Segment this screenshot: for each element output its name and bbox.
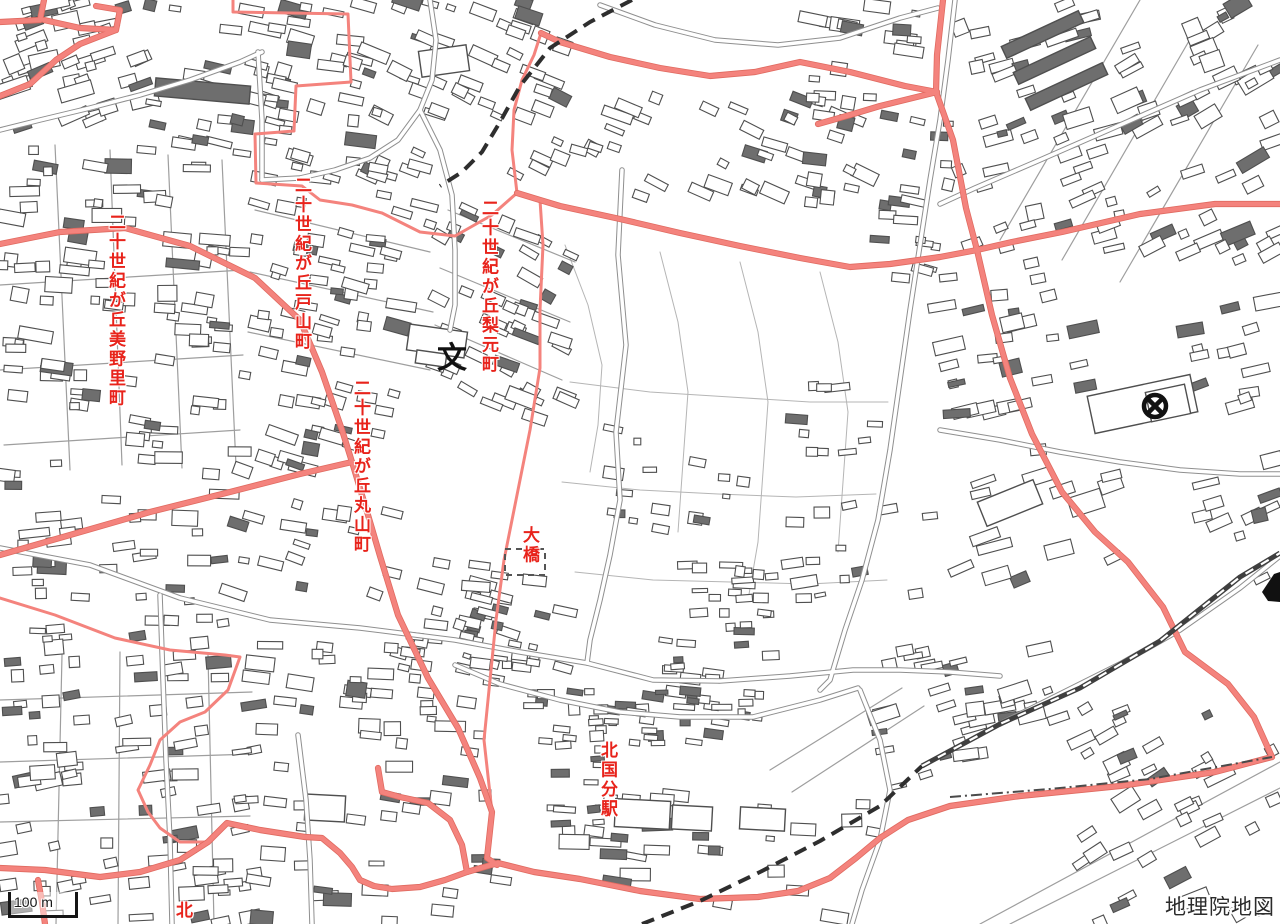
building-footprint	[1040, 289, 1057, 303]
building-footprint	[312, 649, 323, 659]
building-footprint	[371, 429, 385, 439]
building-footprint	[348, 527, 359, 535]
building-footprint	[338, 227, 354, 238]
building-footprint	[817, 384, 832, 392]
building-footprint	[508, 640, 521, 648]
building-footprint	[211, 555, 228, 563]
building-footprint	[553, 605, 578, 618]
building-footprint	[0, 878, 17, 892]
building-footprint	[174, 738, 198, 751]
building-footprint	[197, 614, 213, 622]
building-footprint	[507, 48, 523, 61]
large-building-footprint	[977, 480, 1042, 527]
building-footprint	[1194, 104, 1222, 129]
building-footprint	[587, 805, 600, 814]
building-footprint	[115, 715, 132, 727]
building-footprint	[1245, 822, 1259, 836]
building-footprint	[806, 93, 819, 102]
building-footprint	[1044, 539, 1074, 560]
building-footprint	[1192, 477, 1219, 490]
building-footprint	[144, 420, 160, 430]
building-footprint	[673, 704, 694, 711]
building-footprint	[1046, 334, 1058, 342]
building-footprint	[1147, 186, 1161, 197]
building-footprint	[693, 832, 709, 840]
building-footprint	[1232, 254, 1246, 266]
building-footprint	[336, 505, 351, 521]
building-footprint	[644, 174, 668, 192]
building-footprint	[768, 865, 784, 877]
building-footprint	[762, 137, 788, 152]
building-footprint	[1069, 190, 1095, 208]
building-footprint	[671, 663, 685, 670]
building-footprint	[296, 582, 308, 592]
building-footprint	[1260, 451, 1280, 470]
building-footprint	[994, 222, 1008, 233]
building-footprint	[519, 245, 538, 260]
building-footprint	[699, 101, 718, 116]
building-footprint	[340, 347, 355, 357]
building-footprint	[692, 588, 707, 592]
building-footprint	[522, 408, 548, 426]
building-footprint	[844, 183, 859, 193]
building-footprint	[190, 910, 209, 923]
building-footprint	[939, 273, 957, 282]
building-footprint	[805, 197, 818, 208]
building-footprint	[1121, 42, 1141, 54]
building-footprint	[611, 833, 628, 842]
building-footprint	[258, 556, 284, 571]
building-footprint	[524, 703, 544, 709]
building-footprint	[470, 657, 491, 670]
building-footprint	[1095, 726, 1118, 745]
attribution-text: 地理院地図	[1165, 896, 1275, 919]
building-footprint	[104, 857, 118, 868]
building-footprint	[368, 668, 394, 680]
building-footprint	[43, 636, 53, 642]
building-footprint	[589, 719, 604, 726]
building-footprint	[312, 323, 332, 338]
building-footprint	[40, 296, 53, 305]
building-footprint	[274, 762, 289, 772]
building-footprint	[966, 701, 985, 717]
building-footprint	[307, 99, 325, 116]
building-footprint	[50, 460, 61, 467]
building-footprint	[796, 594, 811, 603]
building-footprint	[91, 296, 100, 304]
building-footprint	[735, 566, 746, 578]
building-footprint	[83, 160, 109, 173]
building-footprint	[820, 190, 835, 205]
building-footprint	[651, 503, 670, 516]
building-footprint	[965, 686, 984, 695]
building-footprint	[233, 149, 251, 157]
building-footprint	[266, 425, 299, 446]
building-footprint	[481, 289, 505, 307]
building-footprint	[250, 234, 263, 245]
building-footprint	[234, 795, 246, 803]
building-footprint	[517, 267, 543, 288]
building-footprint	[734, 641, 748, 648]
building-footprint	[10, 286, 29, 303]
building-footprint	[56, 751, 77, 767]
building-footprint	[71, 593, 89, 601]
building-footprint	[396, 738, 408, 749]
building-footprint	[629, 739, 640, 746]
building-footprint	[762, 651, 779, 661]
building-footprint	[36, 261, 50, 272]
building-footprint	[383, 317, 411, 336]
building-footprint	[979, 115, 998, 129]
building-footprint	[0, 794, 9, 805]
building-footprint	[550, 149, 570, 166]
building-footprint	[802, 152, 826, 166]
building-footprint	[14, 263, 35, 273]
building-footprint	[205, 136, 232, 149]
building-footprint	[10, 186, 40, 196]
building-footprint	[1070, 359, 1088, 369]
building-footprint	[5, 481, 22, 489]
building-footprint	[179, 886, 205, 901]
building-footprint	[461, 580, 490, 592]
building-footprint	[134, 672, 157, 682]
building-footprint	[809, 76, 820, 83]
building-footprint	[908, 588, 923, 599]
building-footprint	[45, 276, 73, 293]
building-footprint	[1030, 273, 1046, 284]
building-footprint	[386, 298, 417, 312]
building-footprint	[294, 247, 308, 257]
building-footprint	[172, 769, 198, 780]
building-footprint	[323, 893, 351, 907]
building-footprint	[539, 738, 552, 745]
building-footprint	[1043, 686, 1053, 695]
building-footprint	[1077, 826, 1096, 842]
building-footprint	[459, 286, 474, 298]
building-footprint	[806, 172, 822, 188]
building-footprint	[191, 406, 200, 415]
building-footprint	[376, 190, 391, 200]
building-footprint	[642, 728, 657, 734]
building-footprint	[1203, 813, 1223, 827]
building-footprint	[155, 354, 175, 366]
building-footprint	[158, 285, 177, 301]
building-footprint	[296, 197, 306, 207]
building-footprint	[970, 26, 991, 38]
building-footprint	[933, 336, 966, 356]
building-footprint	[186, 696, 203, 708]
building-footprint	[197, 119, 212, 131]
building-footprint	[942, 178, 955, 192]
building-footprint	[553, 661, 573, 674]
attribution-link[interactable]: 地理院地図	[1165, 891, 1275, 921]
building-footprint	[677, 639, 696, 647]
building-footprint	[384, 643, 398, 653]
building-footprint	[492, 58, 511, 72]
building-footprint	[674, 657, 683, 663]
building-footprint	[42, 695, 60, 708]
building-footprint	[272, 78, 298, 94]
building-footprint	[489, 245, 504, 258]
building-footprint	[149, 120, 166, 130]
building-footprint	[1242, 322, 1259, 335]
building-footprint	[74, 715, 90, 725]
building-footprint	[1078, 702, 1093, 716]
building-footprint	[428, 290, 449, 307]
building-footprint	[604, 718, 618, 724]
building-footprint	[411, 147, 425, 158]
building-footprint	[369, 861, 384, 866]
building-footprint	[941, 161, 952, 168]
building-footprint	[276, 200, 297, 216]
building-footprint	[92, 208, 122, 222]
building-footprint	[1026, 641, 1052, 657]
building-footprint	[1047, 711, 1070, 726]
building-footprint	[44, 167, 53, 176]
building-footprint	[202, 468, 219, 480]
building-footprint	[649, 91, 663, 105]
building-footprint	[806, 557, 820, 564]
building-footprint	[398, 663, 410, 671]
building-footprint	[442, 888, 457, 899]
building-footprint	[720, 609, 730, 617]
building-footprint	[465, 346, 487, 364]
building-footprint	[1061, 172, 1082, 186]
building-footprint	[11, 669, 24, 682]
building-footprint	[122, 293, 135, 306]
building-footprint	[391, 206, 412, 219]
building-footprint	[692, 563, 706, 573]
building-footprint	[1199, 209, 1217, 226]
building-footprint	[44, 742, 67, 751]
building-footprint	[1259, 110, 1279, 129]
building-footprint	[331, 264, 345, 273]
building-footprint	[551, 769, 569, 777]
building-footprint	[4, 365, 23, 373]
building-footprint	[348, 115, 359, 127]
building-footprint	[863, 94, 876, 101]
building-footprint	[371, 688, 393, 698]
building-footprint	[0, 841, 18, 859]
building-footprint	[1021, 130, 1038, 144]
building-footprint	[1055, 0, 1075, 12]
building-footprint	[82, 389, 101, 402]
building-footprint	[27, 179, 40, 186]
building-footprint	[431, 606, 442, 617]
building-footprint	[1216, 169, 1236, 183]
map-canvas[interactable]: 文	[0, 0, 1280, 924]
building-footprint	[971, 474, 996, 488]
building-footprint	[634, 438, 641, 445]
building-footprint	[1073, 161, 1092, 173]
building-footprint	[870, 235, 889, 243]
building-footprint	[367, 263, 384, 273]
building-footprint	[239, 371, 251, 380]
building-footprint	[238, 3, 264, 18]
building-footprint	[567, 688, 583, 696]
building-footprint	[22, 6, 32, 14]
large-building-footprint	[739, 807, 785, 831]
building-footprint	[605, 124, 625, 136]
building-footprint	[799, 429, 809, 437]
building-footprint	[1251, 507, 1268, 523]
building-footprint	[20, 201, 37, 212]
building-footprint	[739, 699, 753, 706]
building-footprint	[8, 389, 28, 402]
building-footprint	[293, 539, 310, 549]
building-footprint	[380, 246, 402, 259]
building-footprint	[169, 5, 181, 12]
building-footprint	[350, 0, 376, 13]
building-footprint	[1032, 374, 1053, 385]
building-footprint	[791, 823, 816, 836]
building-footprint	[785, 414, 807, 425]
building-footprint	[790, 575, 818, 590]
building-footprint	[90, 807, 105, 817]
large-building-footprint	[614, 799, 670, 830]
building-footprint	[387, 60, 412, 81]
map-symbols-layer: 文	[437, 341, 1280, 602]
building-footprint	[603, 424, 623, 434]
building-footprint	[409, 674, 421, 683]
building-footprint	[814, 507, 830, 518]
building-footprint	[590, 730, 604, 741]
building-footprint	[410, 199, 438, 213]
building-footprint	[152, 441, 162, 448]
building-footprint	[922, 512, 937, 520]
building-footprint	[863, 0, 890, 14]
building-footprint	[309, 275, 328, 286]
building-footprint	[553, 725, 570, 733]
building-footprint	[129, 914, 153, 922]
building-footprint	[689, 457, 706, 468]
building-footprint	[709, 594, 720, 601]
building-footprint	[270, 327, 284, 337]
building-footprint	[69, 656, 80, 667]
building-footprint	[286, 551, 305, 565]
building-footprint	[558, 261, 573, 275]
building-footprint	[30, 765, 56, 781]
building-footprint	[836, 545, 846, 551]
building-footprint	[63, 690, 80, 701]
building-footprint	[155, 194, 173, 207]
building-footprint	[32, 579, 43, 585]
building-footprint	[193, 396, 219, 408]
building-footprint	[232, 461, 253, 479]
building-footprint	[928, 300, 957, 314]
building-footprint	[907, 36, 921, 44]
building-footprint	[491, 571, 508, 580]
building-footprint	[943, 409, 970, 419]
building-footprint	[433, 558, 450, 569]
building-footprint	[1111, 786, 1141, 813]
large-building-footprint	[671, 805, 712, 831]
building-footprint	[1063, 107, 1094, 130]
building-footprint	[258, 310, 270, 320]
building-footprint	[360, 730, 381, 739]
building-footprint	[760, 181, 790, 204]
building-footprint	[74, 370, 87, 381]
building-footprint	[478, 97, 495, 110]
building-footprint	[1236, 147, 1269, 174]
large-building-footprint	[154, 78, 250, 104]
building-footprint	[417, 578, 444, 595]
building-footprint	[1025, 203, 1044, 221]
building-footprint	[734, 628, 754, 635]
building-footprint	[593, 819, 605, 825]
building-footprint	[105, 159, 132, 174]
building-footprint	[891, 273, 909, 283]
building-footprint	[717, 158, 729, 169]
building-footprint	[48, 841, 60, 851]
building-footprint	[798, 11, 828, 27]
large-building-footprint	[418, 45, 469, 77]
building-footprint	[300, 3, 312, 13]
building-footprint	[1234, 531, 1245, 541]
scale-bar: 100 m	[8, 892, 78, 918]
building-footprint	[219, 583, 247, 601]
building-footprint	[1087, 144, 1108, 159]
building-footprint	[128, 877, 149, 890]
building-footprint	[1202, 710, 1213, 720]
building-footprint	[278, 395, 294, 408]
building-footprint	[286, 674, 314, 692]
building-footprint	[595, 746, 608, 753]
building-footprint	[740, 622, 752, 628]
building-footprint	[532, 311, 560, 328]
building-footprint	[1081, 747, 1094, 759]
building-footprint	[969, 59, 985, 74]
building-footprint	[188, 555, 211, 566]
building-footprint	[250, 910, 274, 924]
building-footprint	[644, 734, 658, 740]
building-footprint	[126, 655, 143, 666]
building-footprint	[338, 93, 364, 106]
building-footprint	[843, 164, 856, 175]
building-footprint	[728, 102, 748, 115]
building-footprint	[256, 723, 278, 735]
building-footprint	[632, 189, 649, 202]
building-footprint	[424, 619, 448, 631]
building-footprint	[939, 359, 959, 372]
building-footprint	[551, 820, 571, 827]
building-footprint	[386, 761, 413, 772]
building-footprint	[910, 117, 925, 126]
building-footprint	[1054, 133, 1069, 146]
building-footprint	[194, 725, 208, 736]
building-footprint	[345, 132, 377, 149]
building-footprint	[1253, 291, 1280, 311]
building-footprint	[140, 549, 157, 556]
building-footprint	[112, 375, 137, 387]
building-footprint	[827, 130, 844, 143]
building-footprint	[893, 24, 911, 36]
building-footprint	[28, 736, 37, 746]
building-footprint	[241, 699, 267, 711]
building-footprint	[593, 762, 606, 767]
building-footprint	[490, 875, 511, 886]
building-footprint	[39, 664, 54, 674]
building-footprint	[375, 405, 394, 417]
building-footprint	[1109, 842, 1133, 860]
building-footprint	[210, 321, 230, 329]
building-footprint	[457, 696, 477, 709]
building-footprint	[1176, 243, 1201, 261]
building-footprint	[381, 507, 403, 520]
building-footprint	[255, 449, 275, 466]
building-footprint	[902, 149, 916, 159]
building-footprint	[126, 432, 145, 446]
